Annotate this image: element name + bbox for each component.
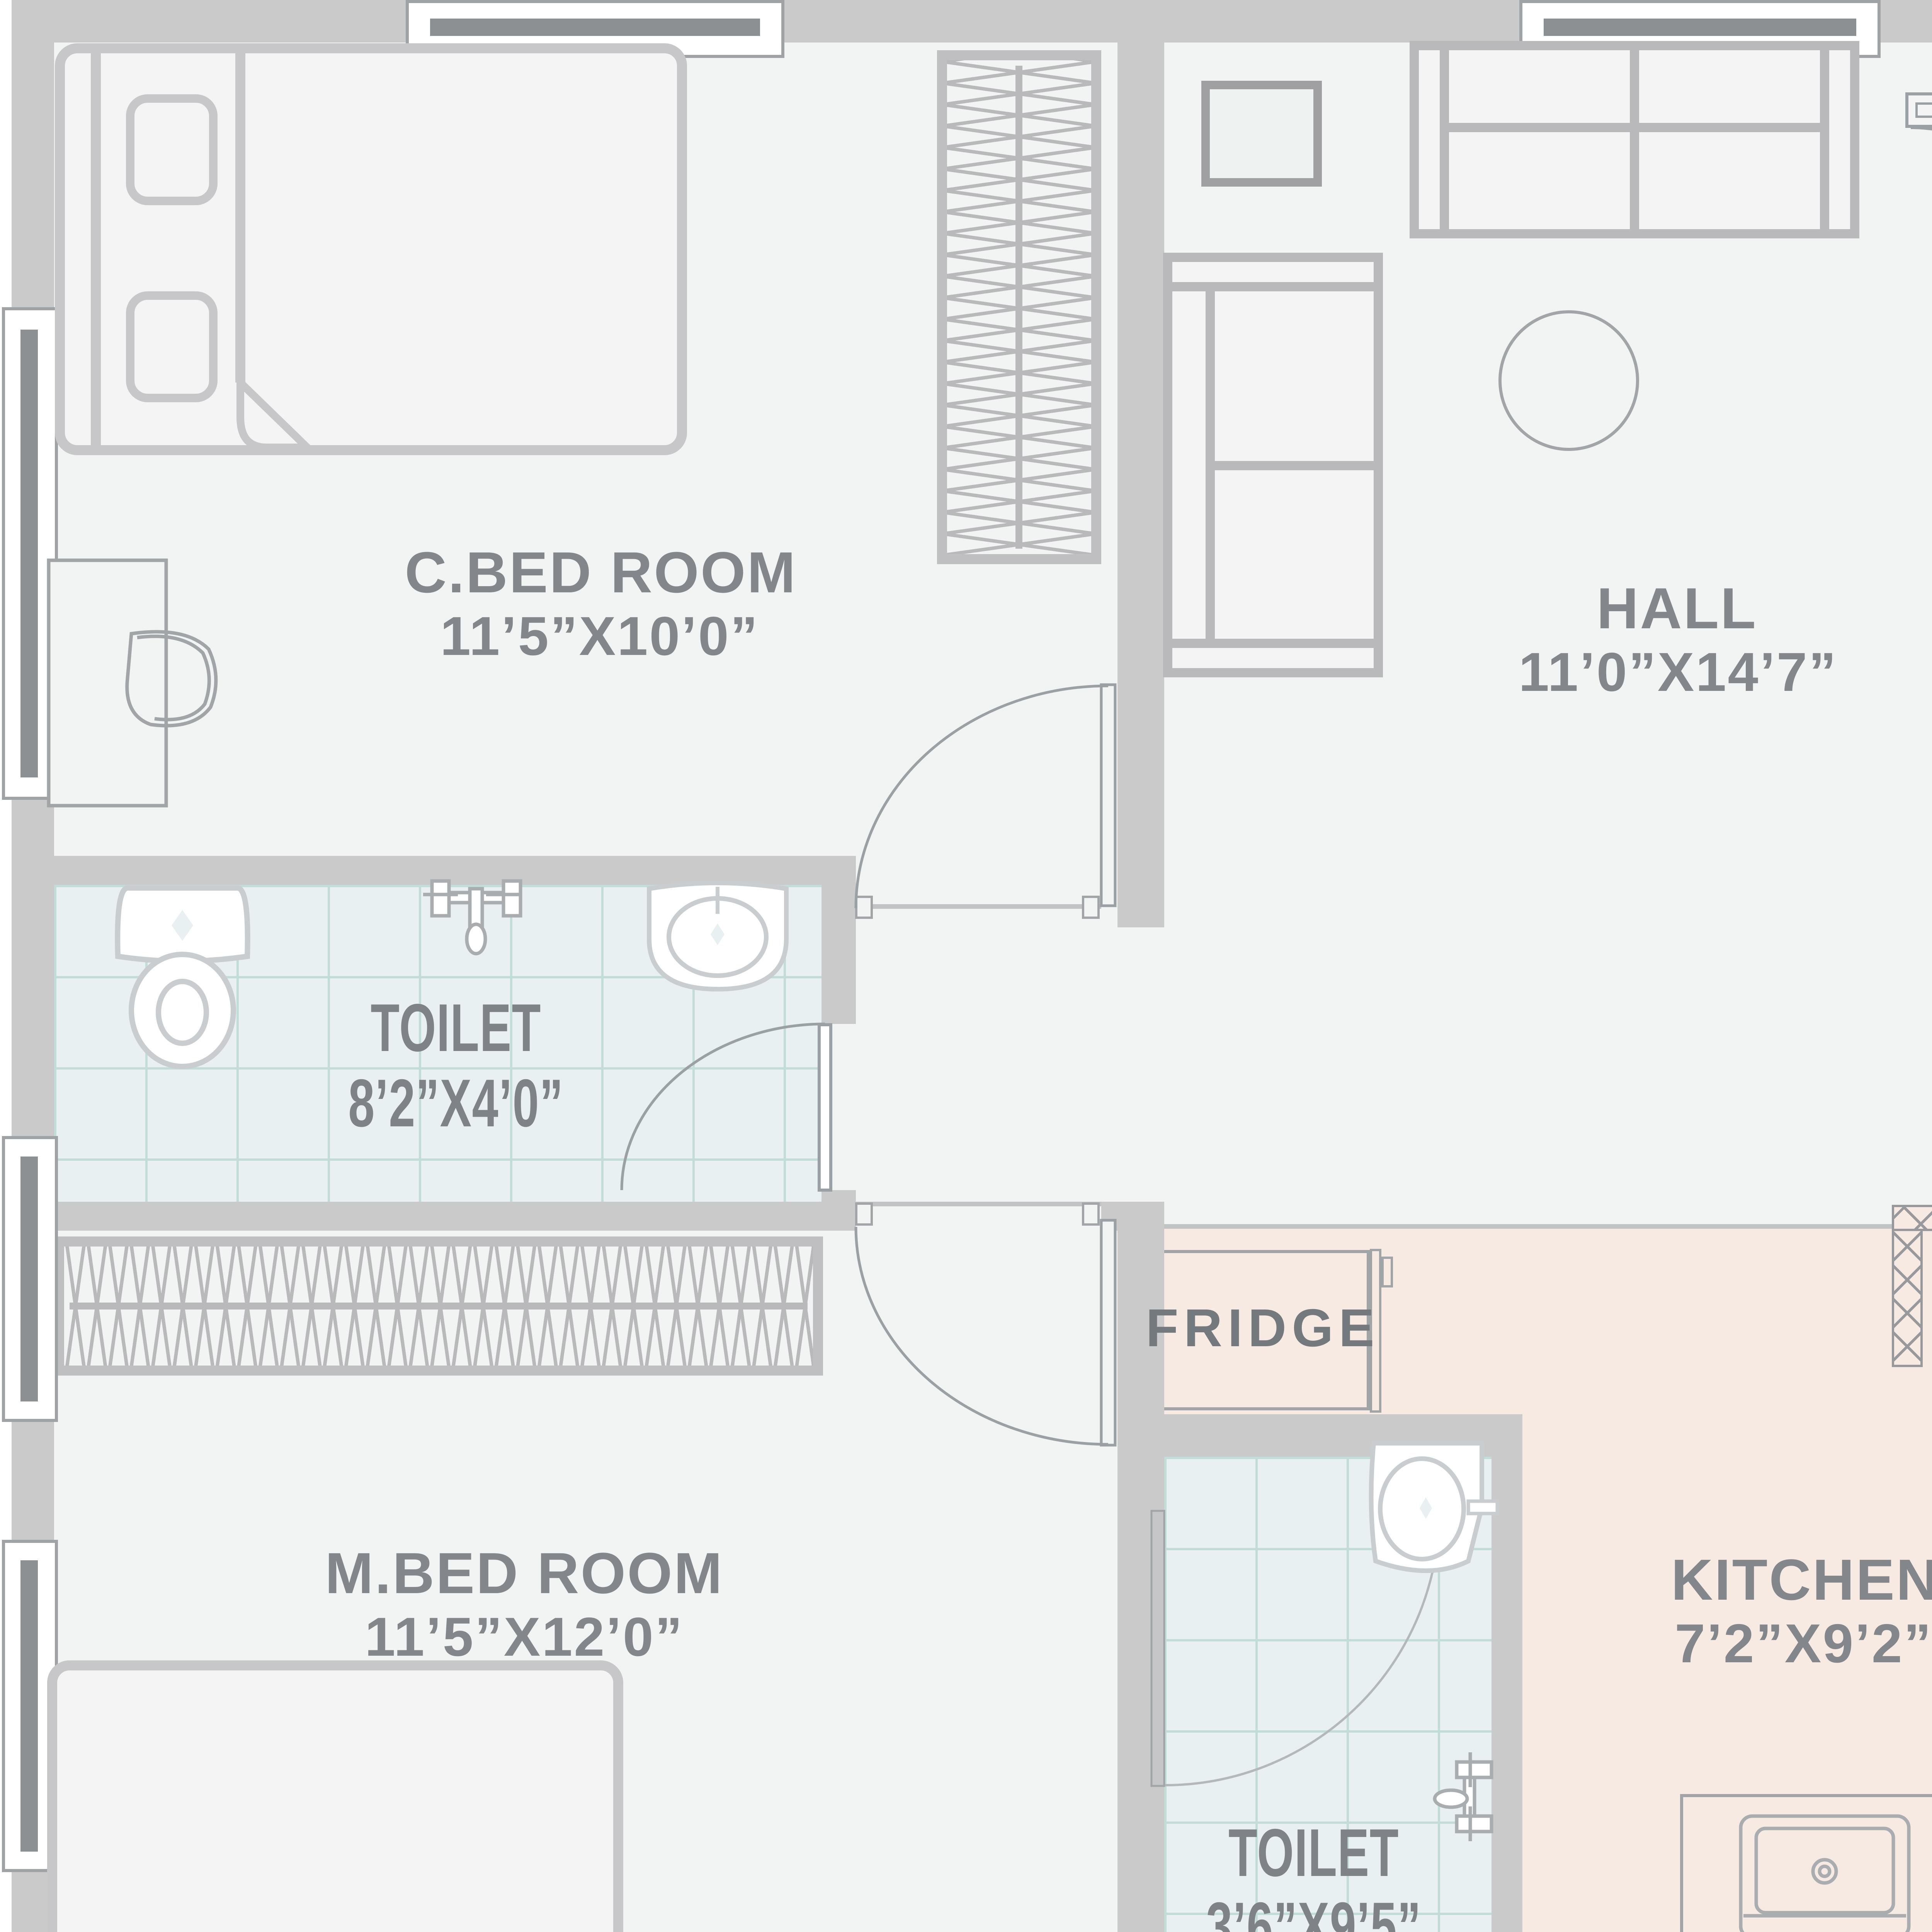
furniture-layer (0, 0, 1932, 1932)
basin-toilet2 (1371, 1443, 1497, 1571)
label-fridge: FRIDGE (1146, 1298, 1379, 1359)
door-cbedroom (856, 685, 1115, 908)
desk-cbedroom (49, 560, 216, 806)
label-toilet1-name: TOILET (371, 989, 541, 1067)
label-mbed-dims: 11’5”X12’0” (365, 1605, 684, 1669)
shower-mixer-toilet1 (423, 881, 521, 954)
door-mbedroom (856, 1220, 1115, 1445)
label-kitchen-dims: 7’2”X9’2” (1675, 1612, 1932, 1675)
round-table-hall (1500, 312, 1638, 449)
label-kitchen-name: KITCHEN (1671, 1546, 1932, 1613)
label-mbed-name: M.BED ROOM (325, 1540, 724, 1607)
main-door (1907, 94, 1932, 576)
wc-toilet1 (117, 888, 247, 1066)
label-hall-dims: 11’0”X14’7” (1519, 641, 1838, 704)
sink-kitchen (1741, 1816, 1909, 1932)
sofa-hall-top (1414, 46, 1855, 234)
label-hall-name: HALL (1597, 575, 1757, 642)
door-toilet1 (622, 1024, 831, 1190)
shower-mixer-toilet2 (1435, 1752, 1492, 1841)
bed-cbedroom (60, 48, 682, 450)
label-toilet1-dims: 8’2”X4’0” (348, 1065, 563, 1142)
floor-plan: C.BED ROOM 11’5”X10’0” HALL 11’0”X14’7” … (0, 0, 1932, 1932)
label-toilet2-name: TOILET (1228, 1814, 1399, 1892)
side-table-hall (1206, 85, 1318, 182)
basin-toilet1 (649, 883, 786, 989)
sofa-hall-side (1168, 257, 1378, 673)
label-cbed-dims: 11’5”X10’0” (440, 605, 759, 668)
bed-mbedroom (52, 1665, 618, 1932)
label-cbed-name: C.BED ROOM (405, 539, 797, 606)
label-toilet2-dims: 3’6”X9’5” (1206, 1888, 1421, 1932)
